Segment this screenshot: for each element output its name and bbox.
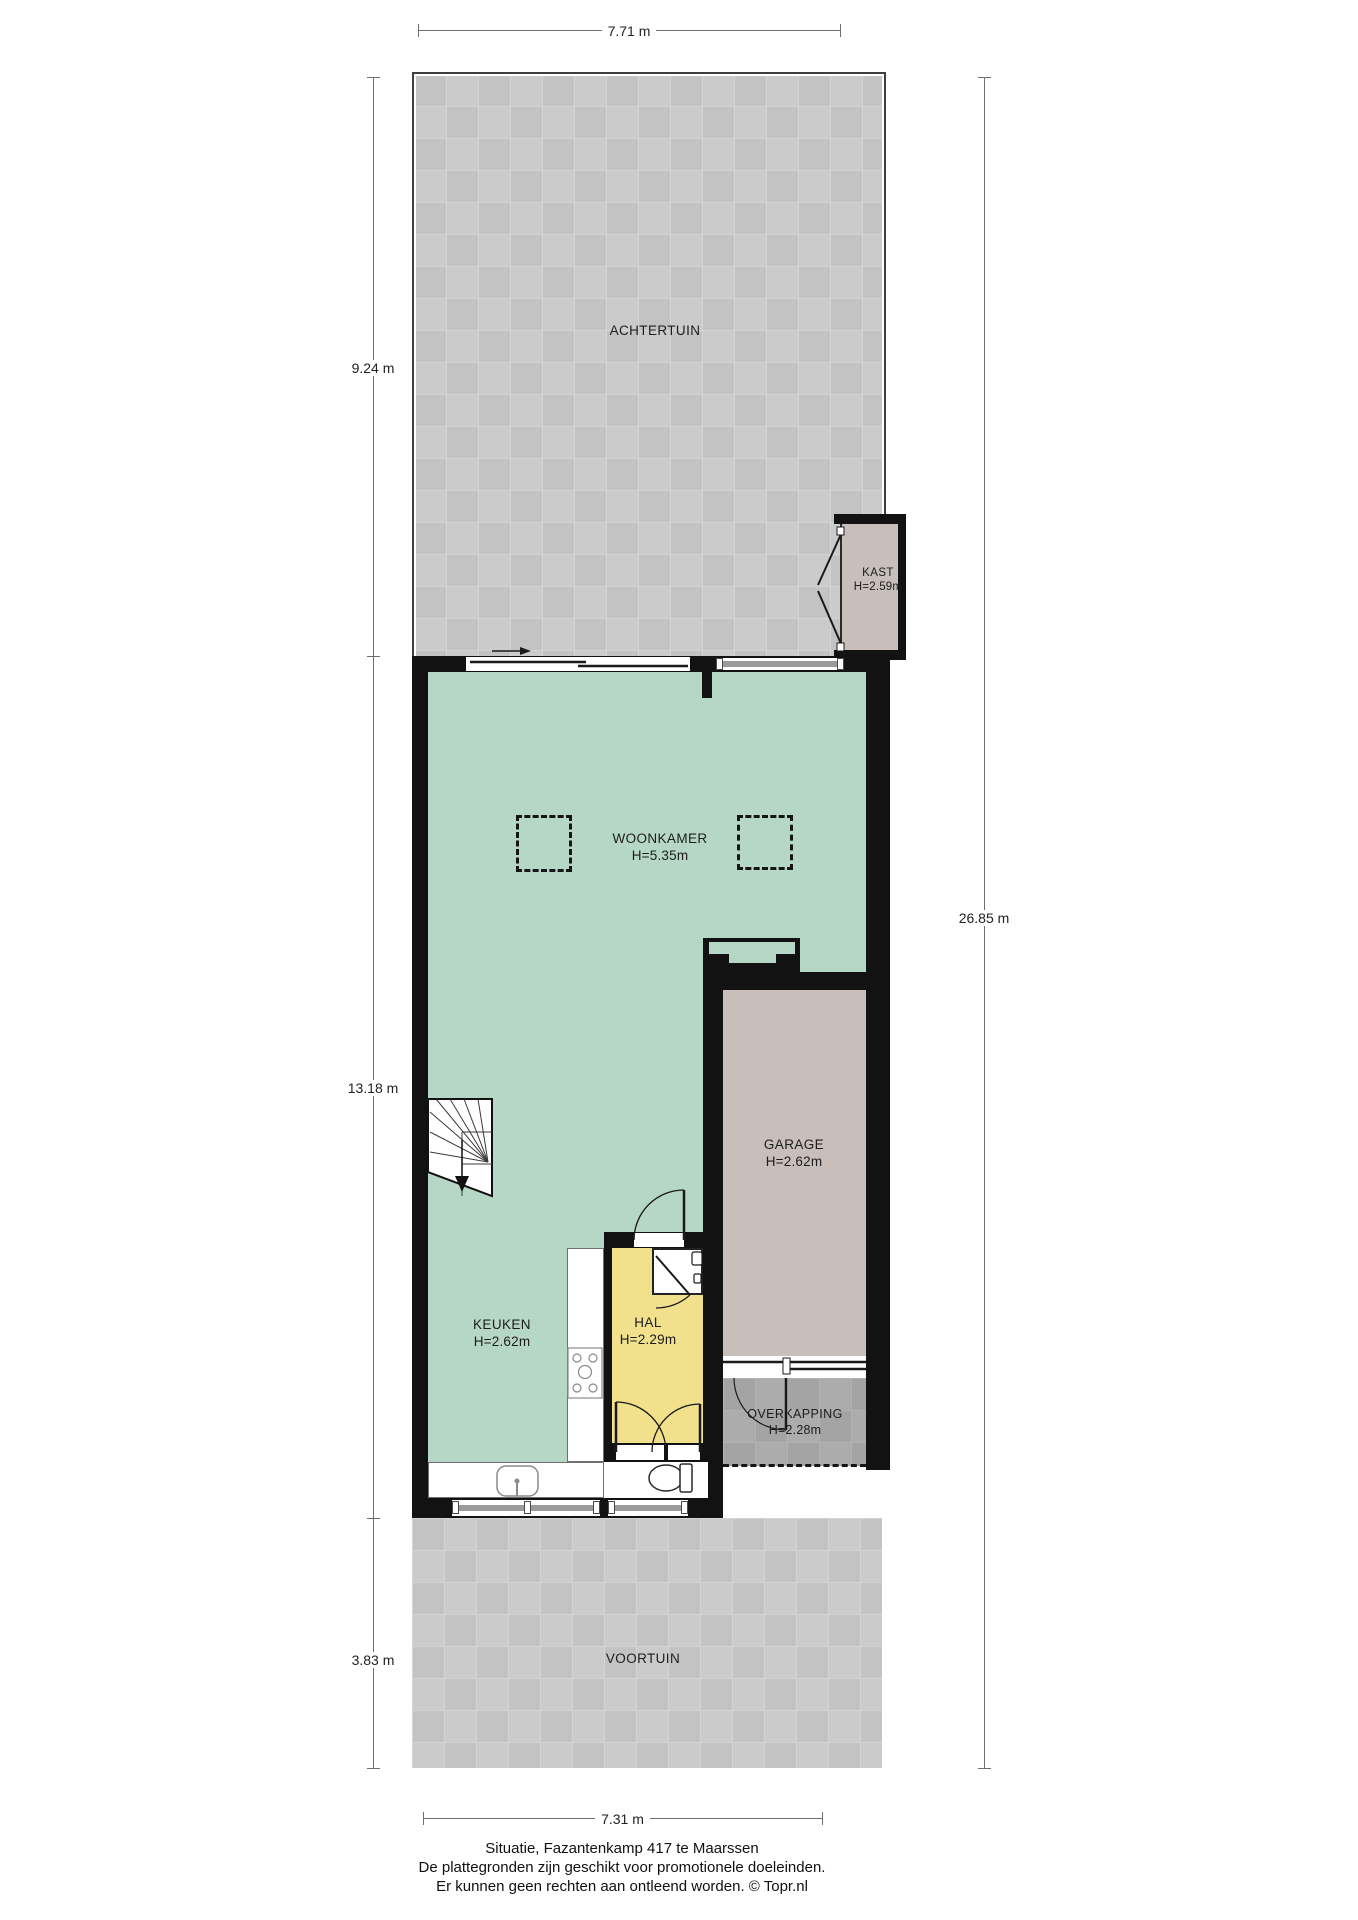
- toilet-right-wall: [708, 1462, 723, 1498]
- dim-tick: [822, 1812, 823, 1825]
- front-door-opening: [616, 1445, 664, 1460]
- meter-cabinet: [652, 1248, 703, 1295]
- dim-tick: [978, 77, 991, 78]
- dim-tick: [367, 656, 380, 657]
- label-kast: KAST H=2.59m: [826, 566, 930, 594]
- label-overkapping: OVERKAPPING H=2.28m: [705, 1406, 885, 1438]
- label-achtertuin: ACHTERTUIN: [420, 322, 890, 339]
- label-voortuin: VOORTUIN: [408, 1650, 878, 1667]
- flue-niche-notch: [729, 954, 776, 963]
- toilet-door-opening: [668, 1445, 700, 1460]
- dim-tick: [367, 1768, 380, 1769]
- window-jamb: [593, 1501, 600, 1514]
- garage-floor: [723, 990, 866, 1356]
- dim-tick: [840, 24, 841, 37]
- kitchen-counter-bottom: [428, 1462, 604, 1498]
- window-jamb: [524, 1501, 531, 1514]
- toilet-floor: [612, 1462, 708, 1498]
- label-garage: GARAGE H=2.62m: [714, 1136, 874, 1170]
- dim-label-right: 26.85 m: [934, 910, 1034, 926]
- livingroom-floor: [428, 672, 866, 972]
- window-jamb: [681, 1501, 688, 1514]
- flue-niche-slot: [709, 942, 795, 954]
- floorplan-canvas: ACHTERTUIN KAST H=2.59m WOONKAMER H=5.35…: [0, 0, 1358, 1920]
- kitchen-counter-side: [567, 1248, 604, 1462]
- window-jamb: [452, 1501, 459, 1514]
- dim-tick: [978, 1768, 991, 1769]
- carport-dashed-edge: [723, 1464, 866, 1467]
- footer-caption: Situatie, Fazantenkamp 417 te Maarssen D…: [272, 1839, 972, 1896]
- corridor-floor: [604, 972, 703, 1248]
- dim-label-bottom: 7.31 m: [423, 1811, 822, 1827]
- dim-line-left-lower: [373, 1518, 374, 1768]
- east-wall: [866, 656, 890, 1470]
- garage-door-band: [723, 1356, 866, 1378]
- backyard-area: [412, 72, 886, 658]
- window-jamb: [716, 658, 723, 670]
- garage-hall-wall: [703, 990, 723, 1462]
- north-wall-pier-stub: [702, 672, 712, 698]
- window-jamb: [837, 658, 844, 670]
- entrance-glass: [614, 1505, 682, 1511]
- livingroom-window-glass: [722, 661, 838, 667]
- window-jamb: [608, 1501, 615, 1514]
- dim-label-top: 7.71 m: [418, 23, 840, 39]
- label-woonkamer: WOONKAMER H=5.35m: [540, 830, 780, 864]
- dim-tick: [367, 77, 380, 78]
- footer-disclaimer-1: De plattegronden zijn geschikt voor prom…: [272, 1858, 972, 1877]
- footer-title: Situatie, Fazantenkamp 417 te Maarssen: [272, 1839, 972, 1858]
- hall-top-door-opening: [634, 1233, 684, 1247]
- dim-label-left-upper: 9.24 m: [328, 360, 418, 376]
- dim-tick: [367, 1518, 380, 1519]
- dim-label-left-middle: 13.18 m: [328, 1080, 418, 1096]
- garage-north-wall: [703, 972, 890, 990]
- label-hal: HAL H=2.29m: [588, 1314, 708, 1348]
- sliding-door-opening: [466, 657, 690, 671]
- kitchen-hall-partition: [604, 1248, 612, 1462]
- dim-label-left-lower: 3.83 m: [328, 1652, 418, 1668]
- label-keuken: KEUKEN H=2.62m: [422, 1316, 582, 1350]
- footer-disclaimer-2: Er kunnen geen rechten aan ontleend word…: [272, 1877, 972, 1896]
- frontyard-area: [412, 1518, 882, 1768]
